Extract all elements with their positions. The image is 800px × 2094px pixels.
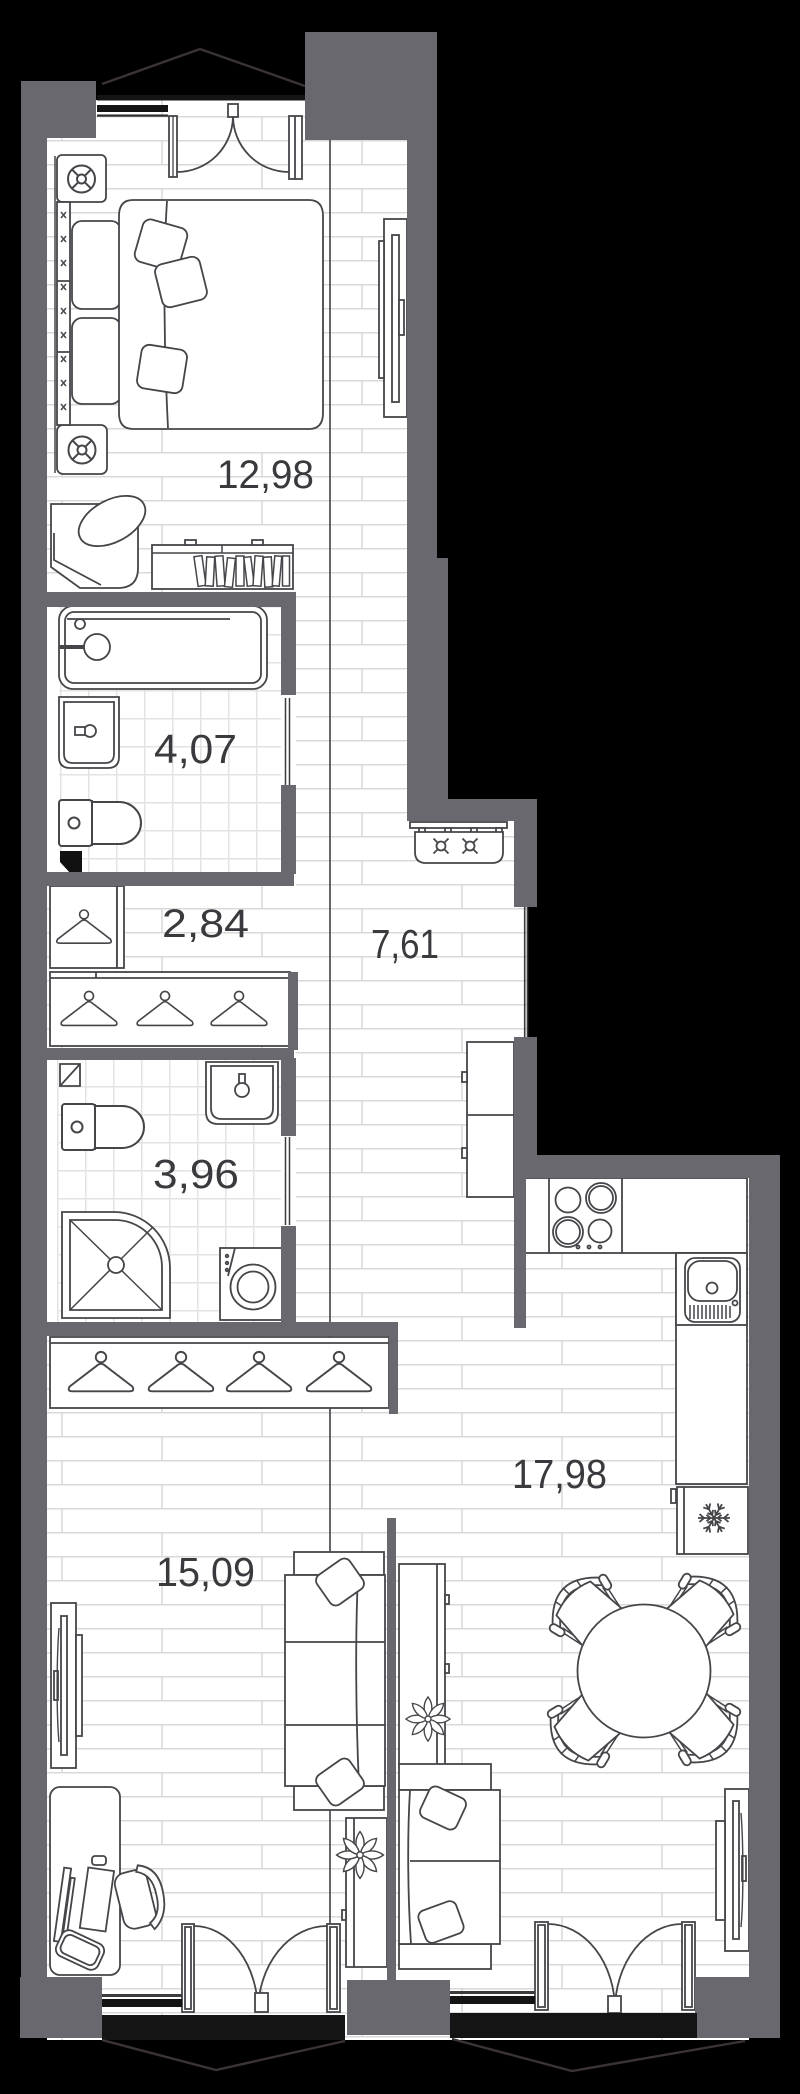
- svg-text:17,98: 17,98: [512, 1451, 607, 1497]
- svg-text:15,09: 15,09: [156, 1549, 255, 1595]
- svg-text:4,07: 4,07: [154, 726, 237, 772]
- svg-text:3,96: 3,96: [153, 1151, 239, 1197]
- svg-text:12,98: 12,98: [217, 453, 314, 497]
- svg-text:2,84: 2,84: [162, 902, 249, 946]
- svg-text:7,61: 7,61: [371, 921, 439, 967]
